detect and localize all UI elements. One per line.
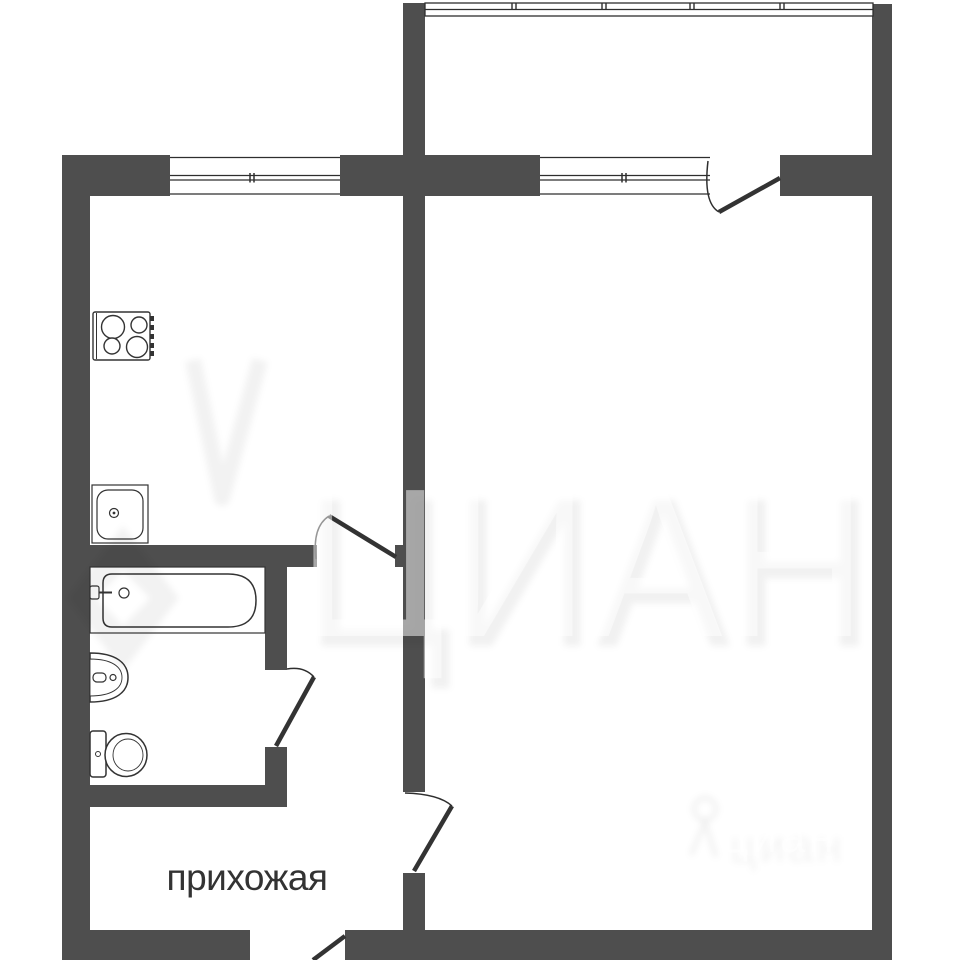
washbasin-tap [93,673,106,682]
watermark-brand-text: ЦИАН [297,444,867,681]
toilet [90,731,147,777]
wall-top-kitchen-left [62,155,170,196]
wall-bottom-left [62,930,250,960]
wall-top-right [780,155,872,196]
room-label-hallway: прихожая [167,857,328,898]
wall-top-middle [340,155,540,196]
balcony-glazing [425,3,873,16]
floor-plan-drawing: прихожая ЦИАН циан ЦИАН циан [0,0,960,960]
wall-right-outer [872,4,892,960]
watermark-brand-small: циан [722,810,837,862]
stove [93,312,154,360]
wall-bottom-right [345,930,892,960]
wall-balcony-left [403,3,425,156]
wall-bathroom-right-upper [265,567,287,670]
wall-bathroom-bottom [62,785,287,807]
floor-plan-page: прихожая ЦИАН циан ЦИАН циан [0,0,960,960]
